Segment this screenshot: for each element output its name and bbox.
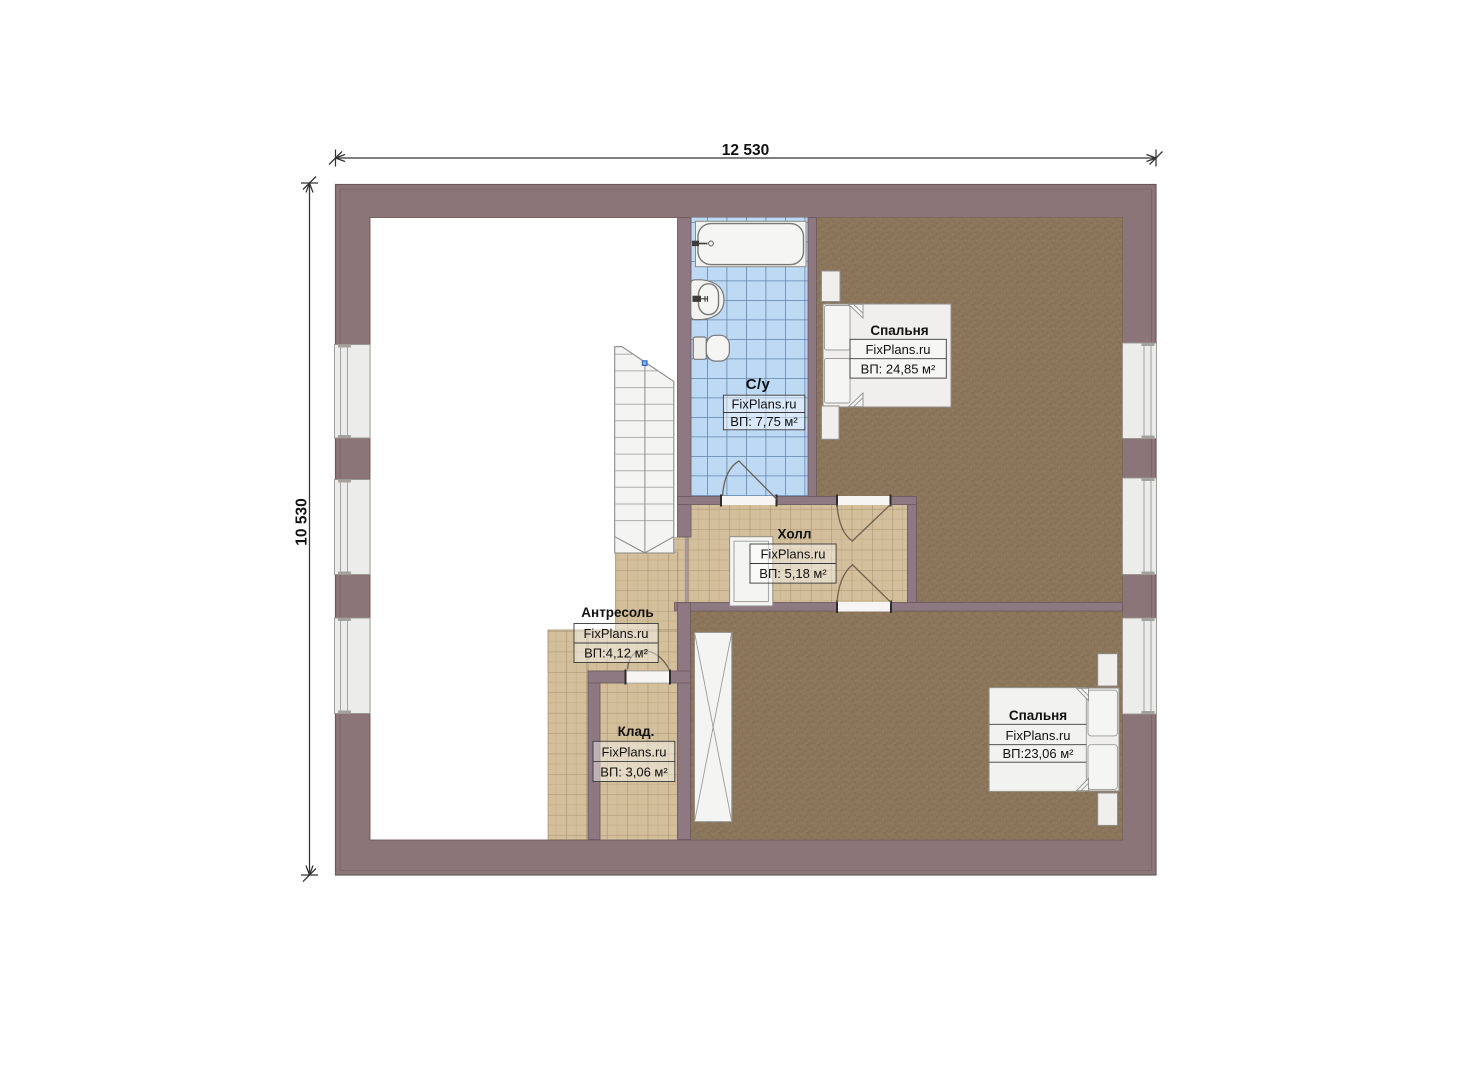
svg-text:С/у: С/у [746, 376, 771, 393]
svg-text:ВП:23,06 м²: ВП:23,06 м² [1002, 746, 1074, 761]
svg-text:ВП: 24,85 м²: ВП: 24,85 м² [861, 362, 936, 377]
svg-text:Холл: Холл [778, 527, 812, 542]
svg-text:Клад.: Клад. [618, 724, 655, 739]
svg-text:ВП: 5,18 м²: ВП: 5,18 м² [759, 566, 827, 581]
svg-text:FixPlans.ru: FixPlans.ru [601, 744, 666, 759]
svg-text:FixPlans.ru: FixPlans.ru [1005, 728, 1070, 743]
svg-text:FixPlans.ru: FixPlans.ru [760, 547, 825, 562]
svg-text:Антресоль: Антресоль [581, 605, 653, 620]
svg-text:Спальня: Спальня [870, 323, 928, 338]
svg-text:FixPlans.ru: FixPlans.ru [731, 397, 796, 412]
svg-text:FixPlans.ru: FixPlans.ru [865, 342, 930, 357]
svg-text:FixPlans.ru: FixPlans.ru [583, 626, 648, 641]
svg-text:ВП:4,12 м²: ВП:4,12 м² [584, 646, 648, 661]
svg-text:Спальня: Спальня [1009, 708, 1067, 723]
svg-text:ВП: 3,06 м²: ВП: 3,06 м² [600, 765, 668, 780]
svg-text:12 530: 12 530 [722, 142, 769, 159]
svg-text:10 530: 10 530 [294, 498, 311, 545]
svg-text:ВП: 7,75 м²: ВП: 7,75 м² [730, 414, 798, 429]
